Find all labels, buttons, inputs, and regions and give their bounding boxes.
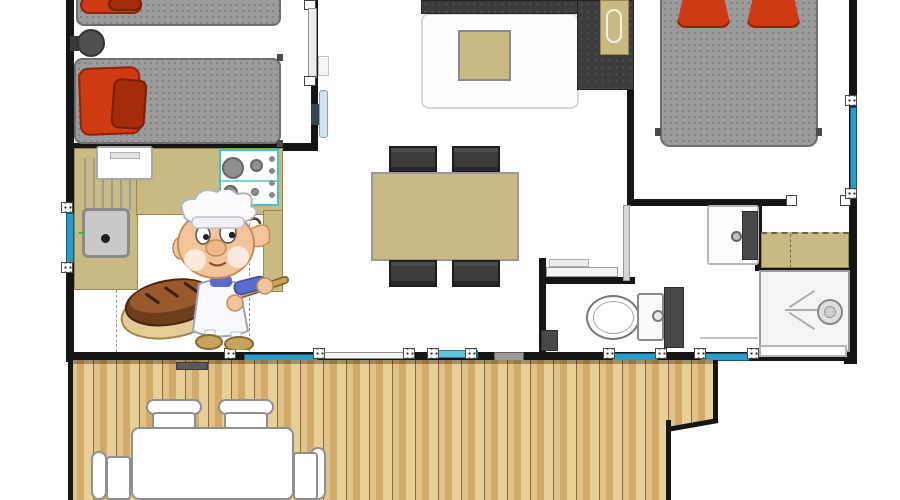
cheek (184, 249, 206, 271)
wall-wc-top (539, 277, 635, 284)
deck-edge-right (713, 360, 718, 420)
wc-door-bracket (549, 259, 589, 267)
dining-table (371, 172, 519, 261)
sliding-door-leaf (308, 8, 317, 78)
bed-pillow (676, 0, 731, 28)
hand (257, 278, 273, 294)
shower-enclosure-bottom (759, 345, 847, 357)
shower-spray-line (785, 309, 817, 311)
shower-spray-line (789, 290, 815, 308)
hob-knob (269, 168, 275, 174)
dining-chair (452, 260, 500, 287)
floor-plan (0, 0, 900, 500)
window-hinge (694, 348, 706, 359)
outdoor-side-chair-back (91, 451, 107, 500)
dining-chair (389, 146, 437, 173)
bed-pillow-small (108, 0, 142, 11)
wall-left (66, 0, 74, 362)
chef-hat-band (192, 217, 244, 228)
deck-edge-inner (666, 420, 671, 500)
slide-door-handle (318, 56, 329, 76)
window-hinge (61, 262, 73, 273)
bay-window-glass (244, 354, 318, 361)
cheek (227, 246, 249, 268)
outdoor-table (131, 427, 294, 500)
pupil (203, 234, 209, 240)
hand (227, 295, 243, 311)
outdoor-side-chair-seat (106, 456, 131, 500)
corner-table-detail (606, 9, 622, 43)
wc-sliding-door (546, 267, 618, 277)
hinged-door-leaf (319, 90, 328, 138)
shower-spray-line (789, 312, 815, 330)
window-hinge (603, 348, 615, 359)
slide-door-cap (304, 76, 316, 86)
window-kitchen-left (66, 213, 74, 263)
window-wc (612, 353, 658, 361)
coffee-table (458, 30, 511, 81)
shower (759, 270, 850, 352)
sliding-bay-track (322, 352, 408, 359)
entry-step (494, 352, 524, 361)
bed-foot (277, 140, 283, 147)
appliance-handle (110, 152, 140, 159)
bed-foot (816, 128, 822, 136)
baker-elf-mascot (115, 190, 295, 350)
dining-chair (389, 260, 437, 287)
window-hinge (61, 202, 73, 213)
nose (206, 240, 226, 256)
window-hinge (465, 348, 477, 359)
wc-cabinet (664, 287, 684, 348)
bed-pillow-small (110, 78, 147, 130)
hall-door-frame (623, 205, 630, 281)
bedside-stool (77, 29, 105, 57)
sofa-corner-table (600, 0, 629, 55)
outdoor-side-chair-seat (293, 452, 318, 500)
window-hinge (313, 348, 325, 359)
hob-knob (269, 180, 275, 186)
washbasin-cabinet (742, 211, 758, 260)
hob-knob (269, 156, 275, 162)
bed-pillow (746, 0, 801, 28)
wall-end-cap (786, 195, 797, 206)
shoe (196, 335, 222, 349)
shoe (225, 337, 253, 350)
deck-shadow (70, 360, 718, 364)
counter-dash (790, 234, 791, 268)
window-hinge (403, 348, 415, 359)
pupil (229, 232, 235, 238)
deck-edge-left (68, 360, 73, 500)
hob-burner (250, 159, 263, 172)
sink-drain (101, 234, 110, 243)
window-bathroom (700, 353, 750, 361)
toilet-seat (593, 301, 634, 334)
shower-head-inner (824, 306, 836, 318)
bed-foot (277, 54, 283, 61)
doormat (176, 362, 208, 370)
dining-chair (452, 146, 500, 173)
bed-foot (655, 128, 661, 136)
window-hinge (747, 348, 759, 359)
hob-burner-large (222, 157, 244, 179)
washbasin-faucet (731, 231, 742, 242)
bathroom-floor-line (700, 337, 758, 339)
wc-bin (541, 330, 558, 351)
window-bedroom2-right (850, 107, 857, 189)
window-hinge (427, 348, 439, 359)
vanity-counter (761, 232, 849, 268)
window-hinge (845, 188, 857, 199)
window-hinge (845, 95, 857, 106)
window-hinge (655, 348, 667, 359)
flush-button (652, 310, 664, 322)
door-hinge (311, 104, 319, 125)
